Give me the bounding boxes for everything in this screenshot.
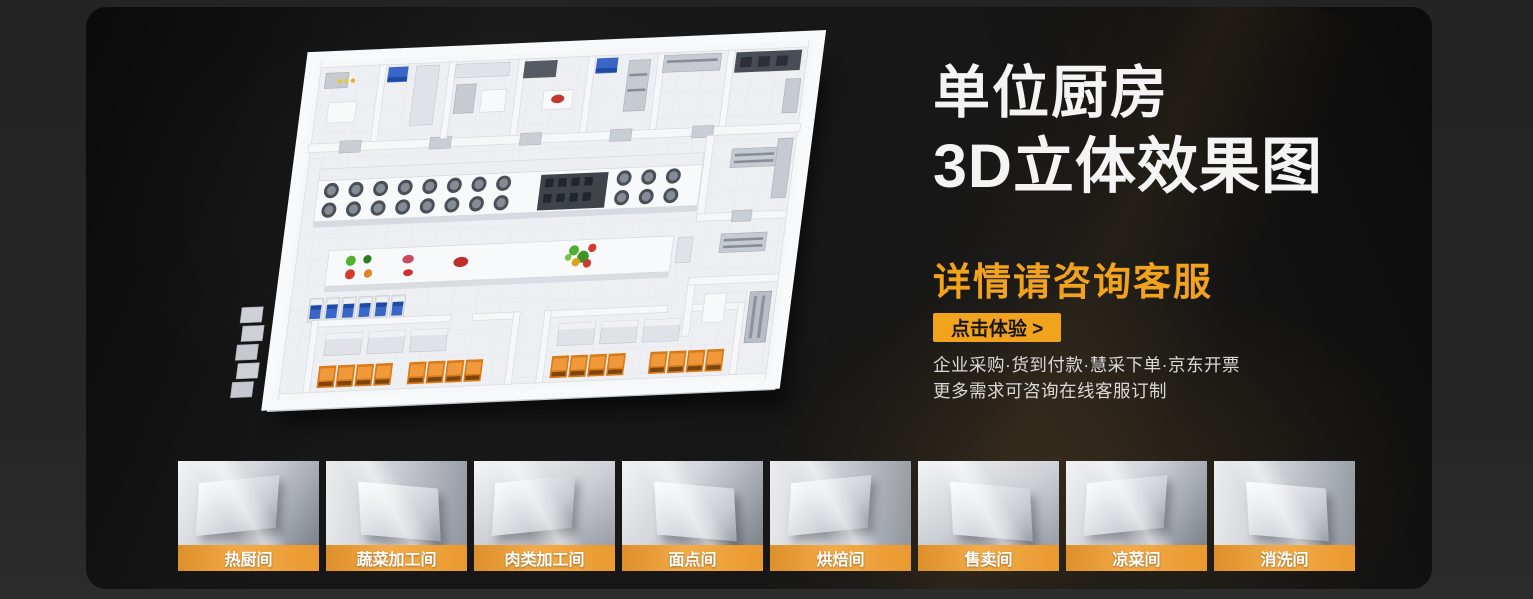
outside-carts <box>230 307 266 398</box>
floorplan-plan-group <box>229 35 820 407</box>
thumbnail-label: 热厨间 <box>178 545 319 571</box>
thumbnail-label: 售卖间 <box>918 545 1059 571</box>
thumbnail-label: 烘焙间 <box>770 545 911 571</box>
feature-line2: 更多需求可咨询在线客服订制 <box>933 378 1240 404</box>
thumbnail-washing-room[interactable]: 消洗间 <box>1214 461 1355 571</box>
thumbnail-pastry-room[interactable]: 面点间 <box>622 461 763 571</box>
thumbnail-label: 消洗间 <box>1214 545 1355 571</box>
feature-lines: 企业采购·货到付款·慧采下单·京东开票 更多需求可咨询在线客服订制 <box>933 352 1240 404</box>
kitchen-floorplan-illustration <box>222 12 912 457</box>
headline-line2: 3D立体效果图 <box>933 136 1323 197</box>
thumbnail-meat-processing[interactable]: 肉类加工间 <box>474 461 615 571</box>
banner-headline: 单位厨房 3D立体效果图 <box>933 65 1323 197</box>
cta-button[interactable]: 点击体验 > <box>933 313 1061 342</box>
floorplan-3d-icon <box>222 12 912 457</box>
banner-page: 单位厨房 3D立体效果图 详情请咨询客服 点击体验 > 企业采购·货到付款·慧采… <box>0 0 1533 599</box>
headline-line1: 单位厨房 <box>933 65 1323 122</box>
thumbnail-label: 面点间 <box>622 545 763 571</box>
thumbnail-hot-kitchen[interactable]: 热厨间 <box>178 461 319 571</box>
thumbnail-label: 蔬菜加工间 <box>326 545 467 571</box>
thumbnail-cold-dish-room[interactable]: 凉菜间 <box>1066 461 1207 571</box>
banner-subtitle: 详情请咨询客服 <box>933 251 1213 306</box>
thumbnail-baking-room[interactable]: 烘焙间 <box>770 461 911 571</box>
thumbnail-label: 肉类加工间 <box>474 545 615 571</box>
thumbnail-label: 凉菜间 <box>1066 545 1207 571</box>
banner-panel: 单位厨房 3D立体效果图 详情请咨询客服 点击体验 > 企业采购·货到付款·慧采… <box>86 7 1432 589</box>
room-thumbnail-gallery: 热厨间 蔬菜加工间 肉类加工间 面点间 烘焙间 售卖间 <box>178 461 1355 571</box>
feature-line1: 企业采购·货到付款·慧采下单·京东开票 <box>933 352 1240 378</box>
thumbnail-vegetable-processing[interactable]: 蔬菜加工间 <box>326 461 467 571</box>
thumbnail-sales-room[interactable]: 售卖间 <box>918 461 1059 571</box>
